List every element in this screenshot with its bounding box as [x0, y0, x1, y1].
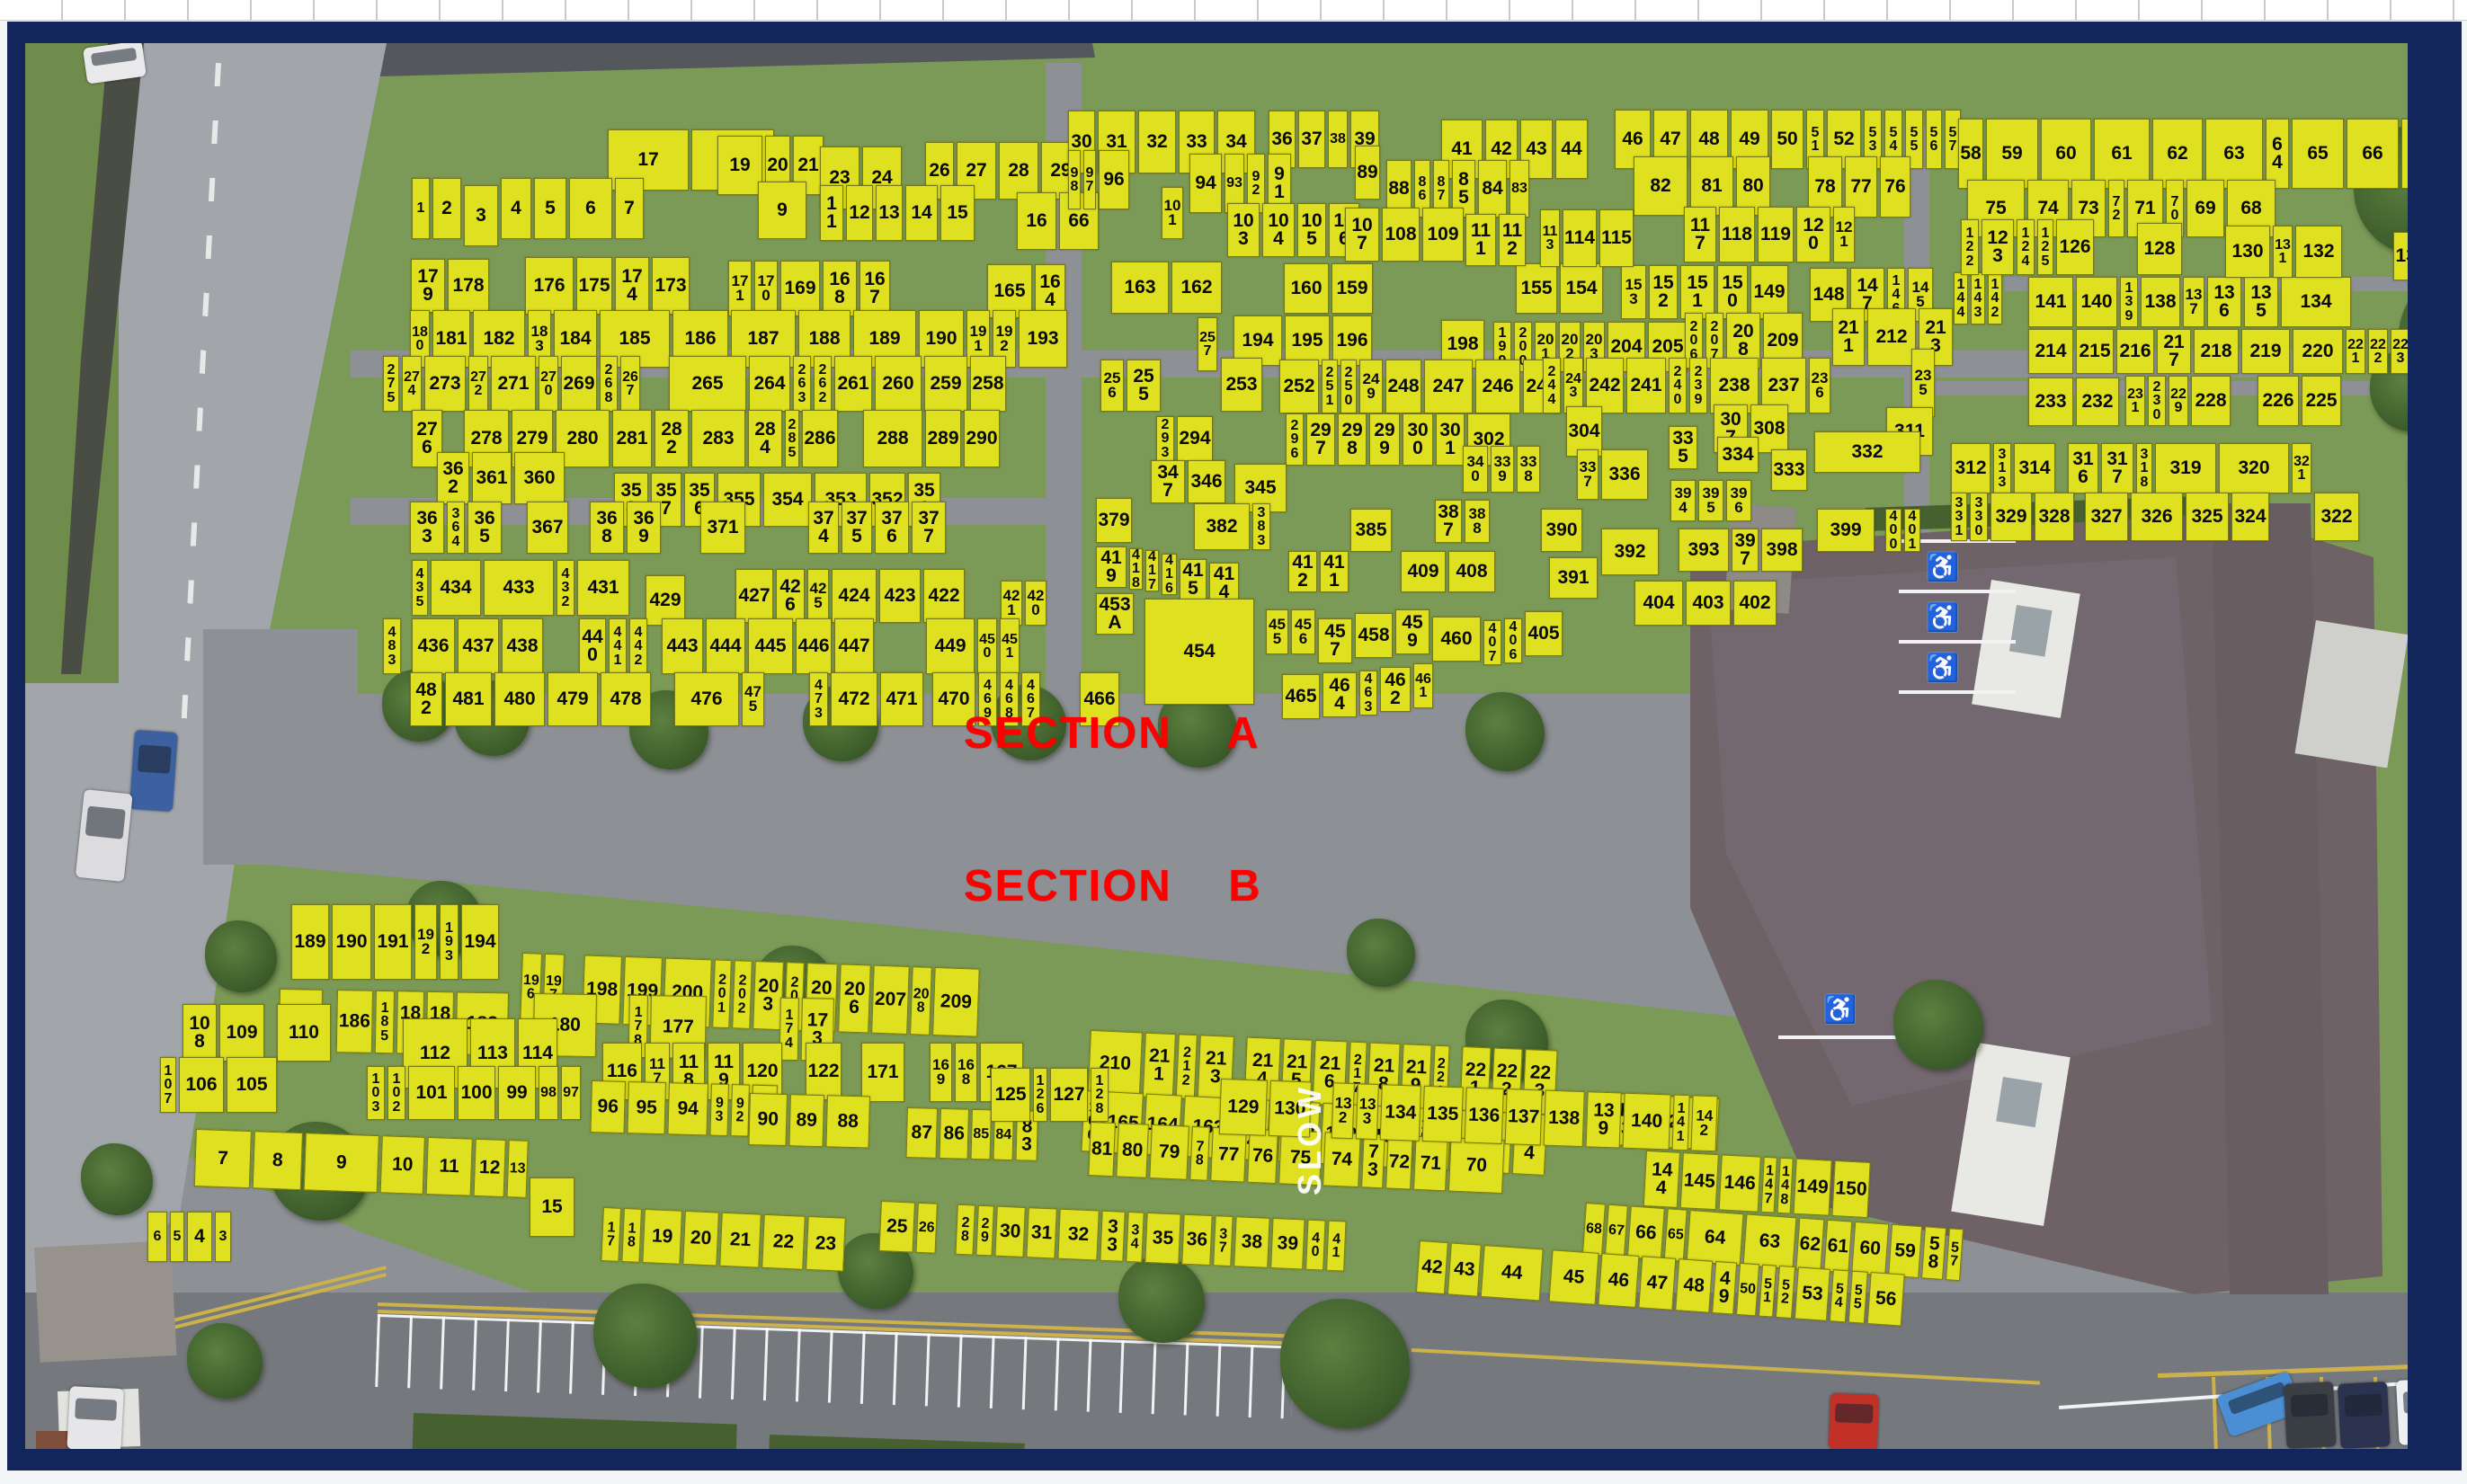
plot-193: 193	[1019, 310, 1067, 368]
plot-178: 178	[448, 259, 489, 313]
plot-247: 247	[1424, 360, 1473, 413]
plot-134: 134	[2281, 277, 2351, 327]
plot-59: 59	[1986, 119, 2038, 189]
plot-row: 125126127128	[991, 1068, 1109, 1122]
plot-99: 99	[498, 1066, 536, 1120]
plot-gap	[445, 410, 461, 411]
plot-226: 226	[2258, 376, 2299, 426]
plot-369: 369	[627, 502, 661, 554]
plot-472: 472	[831, 672, 877, 726]
plot-230: 230	[2148, 376, 2166, 426]
plot-218: 218	[2194, 329, 2239, 374]
plot-297: 297	[1306, 413, 1335, 466]
plot-44: 44	[1555, 120, 1588, 179]
plot-420: 420	[1025, 581, 1046, 626]
plot-259: 259	[924, 356, 967, 412]
plot-327: 327	[2085, 493, 2128, 541]
plot-121: 121	[1833, 207, 1855, 262]
wheelchair-icon: ♿	[1926, 653, 1959, 684]
plot-246: 246	[1475, 360, 1520, 413]
plot-row: 347346	[1151, 460, 1225, 503]
plot-row: 1234567	[412, 178, 644, 246]
plot-28: 28	[955, 1204, 975, 1256]
plot-row: 214215216217218219220221222223224	[2028, 329, 2408, 374]
plot-194: 194	[461, 904, 499, 980]
plot-388: 388	[1465, 500, 1490, 543]
plot-120: 120	[1796, 207, 1830, 262]
plot-47: 47	[1638, 1256, 1676, 1311]
plot-364: 364	[447, 502, 465, 554]
plot-144: 144	[1643, 1151, 1680, 1208]
plot-46: 46	[1598, 1253, 1639, 1308]
plot-row: 404403402	[1634, 581, 1777, 626]
plot-68: 68	[1582, 1203, 1606, 1256]
plot-442: 442	[629, 618, 647, 674]
plot-row: 391	[1549, 557, 1598, 599]
plot-147: 147	[1761, 1157, 1777, 1213]
plot-119: 119	[1758, 207, 1794, 262]
plot-row: 144143142	[1954, 272, 2002, 324]
plot-row: 144145146147148149150	[1643, 1151, 1871, 1218]
plot-row: 171170169168167	[728, 261, 890, 316]
plot-gap	[567, 955, 582, 956]
plot-296: 296	[1286, 413, 1304, 466]
plot-149: 149	[1794, 1159, 1832, 1216]
plot-360: 360	[514, 452, 565, 504]
plot-107: 107	[160, 1057, 176, 1113]
plot-row: 155154	[1516, 263, 1603, 314]
plot-row: 111112	[1465, 214, 1526, 266]
plot-115: 115	[1599, 209, 1634, 267]
ground-patch	[203, 629, 358, 865]
plot-row: 989796	[1068, 150, 1129, 209]
plot-438: 438	[502, 618, 543, 674]
plot-row: 163162	[1111, 262, 1222, 314]
plot-126: 126	[2056, 219, 2094, 275]
plot-216: 216	[2116, 329, 2154, 374]
plot-338: 338	[1517, 446, 1540, 493]
plot-gap	[1237, 1036, 1244, 1037]
plot-191: 191	[374, 904, 412, 980]
plot-63: 63	[1743, 1213, 1797, 1269]
wheelchair-icon: ♿	[1823, 994, 1857, 1026]
plot-12: 12	[474, 1139, 506, 1197]
plot-318: 318	[2136, 443, 2152, 493]
plot-row: 337336	[1577, 449, 1648, 500]
plot-232: 232	[2076, 378, 2119, 426]
plot-185: 185	[375, 991, 395, 1053]
plot-383: 383	[1252, 503, 1270, 550]
plot-64: 64	[2266, 119, 2289, 189]
plot-403: 403	[1686, 581, 1731, 626]
plot-289: 289	[925, 410, 961, 467]
wheelchair-icon: ♿	[1926, 602, 1959, 634]
plot-114: 114	[1563, 209, 1597, 267]
plot-15: 15	[940, 185, 975, 241]
plot-145: 145	[1680, 1152, 1719, 1210]
plot-217: 217	[2157, 329, 2191, 374]
plot-257: 257	[1198, 317, 1217, 371]
plot-row: 465464463462461	[1282, 662, 1433, 719]
plot-56: 56	[1867, 1272, 1905, 1327]
plot-76: 76	[1247, 1129, 1278, 1184]
plot-365: 365	[468, 502, 502, 554]
plot-50: 50	[1771, 110, 1803, 169]
plot-6: 6	[147, 1212, 167, 1262]
plot-160: 160	[1284, 263, 1329, 314]
plot-168: 168	[955, 1043, 977, 1102]
plot-row: 160159	[1284, 263, 1373, 314]
plot-193: 193	[440, 904, 459, 980]
plot-189: 189	[291, 904, 329, 980]
plot-row: 9	[758, 182, 806, 239]
plot-73: 73	[1361, 1133, 1385, 1188]
plot-221: 221	[2346, 329, 2365, 374]
plot-20: 20	[682, 1211, 719, 1266]
plot-37: 37	[1298, 111, 1325, 168]
plot-419: 419	[1096, 547, 1127, 588]
plot-339: 339	[1491, 446, 1514, 493]
plot-31: 31	[1026, 1207, 1056, 1258]
plot-58: 58	[1921, 1226, 1946, 1280]
plot-9: 9	[758, 182, 806, 239]
plot-137: 137	[1505, 1089, 1543, 1145]
plot-row: 108109110	[183, 1004, 331, 1062]
plot-88: 88	[825, 1095, 870, 1148]
plot-61: 61	[1823, 1220, 1852, 1274]
plot-406: 406	[1504, 618, 1522, 663]
plot-390: 390	[1541, 509, 1582, 552]
plot-437: 437	[458, 618, 499, 674]
plot-480: 480	[494, 672, 545, 726]
plot-454: 454	[1144, 599, 1254, 705]
plot-gap	[600, 994, 627, 996]
plot-52: 52	[1776, 1266, 1795, 1319]
plot-44: 44	[1481, 1245, 1544, 1301]
plot-445: 445	[748, 618, 793, 674]
plot-391: 391	[1549, 557, 1598, 599]
plot-87: 87	[906, 1107, 938, 1159]
plot-61: 61	[2094, 119, 2150, 189]
plot-426: 426	[776, 569, 805, 623]
plot-284: 284	[748, 410, 782, 467]
map-frame-left	[7, 22, 25, 1471]
plot-row: 332	[1814, 431, 1920, 473]
plot-298: 298	[1338, 413, 1367, 466]
plot-233: 233	[2028, 378, 2073, 426]
plot-gap	[267, 1004, 274, 1005]
plot-186: 186	[336, 990, 373, 1053]
plot-244: 244	[1543, 358, 1561, 413]
plot-223: 223	[2391, 329, 2408, 374]
plot-379: 379	[1096, 498, 1132, 543]
plot-337: 337	[1577, 449, 1599, 500]
plot-49: 49	[1712, 1261, 1737, 1315]
plot-253: 253	[1221, 358, 1262, 412]
plot-row: 453A	[1096, 593, 1134, 635]
plot-62: 62	[2152, 119, 2203, 189]
plot-32: 32	[1138, 111, 1176, 173]
plot-416: 416	[1162, 554, 1177, 595]
plot-399: 399	[1817, 509, 1875, 552]
plot-138: 138	[2141, 277, 2180, 327]
plot-96: 96	[590, 1080, 626, 1133]
plot-gap	[940, 1204, 955, 1205]
plot-229: 229	[2169, 376, 2188, 426]
plot-104: 104	[1262, 203, 1295, 257]
plot-row: 4834364374384404414424434444454464474494…	[383, 618, 1020, 674]
plot-192: 192	[414, 904, 437, 980]
plot-19: 19	[717, 136, 762, 195]
plot-149: 149	[1750, 265, 1788, 319]
plot-128: 128	[1091, 1068, 1109, 1122]
plot-241: 241	[1626, 358, 1666, 413]
plot-row: 1112131415	[820, 185, 975, 241]
plot-209: 209	[932, 967, 980, 1037]
plot-171: 171	[861, 1043, 904, 1102]
plot-461: 461	[1413, 663, 1433, 708]
plot-row: 78910111213	[194, 1129, 529, 1198]
plot-row: 107106105	[160, 1057, 277, 1113]
parking-line	[1899, 690, 2016, 694]
plot-340: 340	[1463, 446, 1488, 493]
plot-219: 219	[2241, 329, 2290, 374]
plot-39: 39	[1270, 1218, 1305, 1270]
plot-457: 457	[1318, 618, 1352, 663]
plot-row: 189190191192193194	[291, 904, 499, 980]
plot-59: 59	[1888, 1224, 1922, 1278]
plot-441: 441	[609, 618, 627, 674]
plot-152: 152	[1649, 265, 1678, 319]
plot-gap	[1314, 1082, 1331, 1084]
plot-299: 299	[1369, 413, 1400, 466]
plot-23: 23	[806, 1216, 846, 1272]
plot-325: 325	[2186, 493, 2229, 541]
plot-3: 3	[464, 185, 498, 246]
plot-122: 122	[1961, 219, 1979, 275]
plot-gap	[650, 618, 659, 619]
plot-458: 458	[1355, 613, 1393, 658]
plot-139: 139	[1586, 1091, 1622, 1148]
plot-214: 214	[2028, 329, 2073, 374]
plot-row: 113114115	[1540, 209, 1634, 267]
tree-icon	[1347, 919, 1415, 987]
plot-222: 222	[2368, 329, 2388, 374]
plot-433: 433	[484, 560, 554, 616]
plot-gap	[709, 996, 778, 998]
plot-13: 13	[876, 185, 903, 241]
plot-45: 45	[1549, 1249, 1599, 1304]
plot-19: 19	[642, 1209, 682, 1265]
plot-447: 447	[834, 618, 874, 674]
plot-274: 274	[402, 356, 422, 412]
plot-263: 263	[793, 356, 811, 412]
plot-89: 89	[788, 1094, 824, 1147]
plot-387: 387	[1435, 500, 1462, 543]
plot-376: 376	[875, 502, 909, 554]
plot-375: 375	[842, 502, 872, 554]
plot-5: 5	[534, 178, 566, 239]
plot-127: 127	[1050, 1068, 1088, 1122]
plot-34: 34	[1126, 1212, 1144, 1263]
plot-151: 151	[1680, 265, 1714, 319]
plot-273: 273	[424, 356, 466, 412]
plot-301: 301	[1436, 413, 1465, 466]
plot-row: 394395396	[1670, 480, 1751, 521]
plot-row: 385	[1350, 509, 1392, 552]
plot-471: 471	[880, 672, 923, 726]
plot-100: 100	[458, 1066, 495, 1120]
plot-gap	[571, 502, 587, 502]
car	[1829, 1393, 1879, 1449]
plot-392: 392	[1601, 529, 1659, 575]
plot-294: 294	[1177, 416, 1213, 461]
plot-333: 333	[1771, 449, 1807, 491]
plot-167: 167	[859, 261, 890, 316]
plot-174: 174	[615, 257, 649, 315]
plot-270: 270	[539, 356, 558, 412]
plot-26: 26	[916, 1203, 938, 1254]
plot-10: 10	[380, 1135, 425, 1195]
plot-128: 128	[2137, 223, 2182, 275]
plot-102: 102	[387, 1066, 405, 1120]
plot-82: 82	[1634, 156, 1688, 216]
plot-40: 40	[1305, 1220, 1325, 1271]
plot-463: 463	[1359, 671, 1377, 715]
plot-row: 379	[1096, 498, 1132, 543]
plot-465: 465	[1282, 674, 1320, 719]
plot-28: 28	[999, 142, 1038, 200]
plot-407: 407	[1483, 620, 1501, 665]
tree-icon	[205, 920, 277, 992]
plot-331: 331	[1951, 493, 1967, 541]
plot-267: 267	[620, 356, 640, 412]
plot-row: 231230229228226225	[2125, 376, 2341, 426]
plot-60: 60	[1851, 1222, 1889, 1276]
plot-415: 415	[1180, 559, 1207, 600]
plot-65: 65	[2292, 119, 2344, 189]
plot-125: 125	[2037, 219, 2053, 275]
parking-line	[1899, 640, 2016, 644]
plot-367: 367	[527, 502, 568, 554]
plot-gap	[512, 993, 531, 994]
plot-312: 312	[1951, 443, 1991, 493]
plot-368: 368	[590, 502, 624, 554]
plot-329: 329	[1991, 493, 2032, 541]
plot-481: 481	[445, 672, 492, 726]
plot-110: 110	[277, 1004, 331, 1062]
plot-gap	[1043, 672, 1077, 673]
plot-397: 397	[1732, 529, 1759, 572]
plot-169: 169	[780, 261, 820, 316]
plot-65: 65	[1664, 1208, 1688, 1261]
plot-408: 408	[1448, 551, 1495, 592]
plot-317: 317	[2101, 443, 2133, 493]
plot-66: 66	[2347, 119, 2399, 189]
plot-140: 140	[1623, 1093, 1671, 1151]
plot-436: 436	[412, 618, 455, 674]
plot-row: 293294	[1156, 416, 1213, 461]
plot-141: 141	[2028, 277, 2073, 327]
plot-76: 76	[1880, 156, 1910, 218]
plot-446: 446	[796, 618, 832, 674]
plot-425: 425	[807, 569, 829, 623]
plot-32: 32	[1057, 1209, 1099, 1261]
plot-288: 288	[863, 410, 922, 467]
plot-455: 455	[1266, 609, 1288, 654]
plot-268: 268	[600, 356, 618, 412]
plot-row: 393397398	[1679, 529, 1803, 572]
plot-402: 402	[1733, 581, 1777, 626]
map-frame-right	[2408, 22, 2462, 1471]
plot-313: 313	[1993, 443, 2011, 493]
plot-36: 36	[1181, 1214, 1212, 1266]
plot-33: 33	[1100, 1211, 1125, 1262]
plot-80: 80	[1116, 1123, 1149, 1177]
plot-106: 106	[179, 1057, 224, 1113]
plot-251: 251	[1322, 360, 1338, 413]
plot-405: 405	[1525, 611, 1563, 656]
plot-60: 60	[2041, 119, 2091, 189]
aerial-photo: ♿♿♿♿ 17181920212324262728293031323334363…	[25, 43, 2408, 1449]
plot-gap	[2272, 493, 2311, 493]
plot-row: 122123124125126	[1961, 219, 2094, 275]
plot-159: 159	[1331, 263, 1373, 314]
plot-139: 139	[2120, 277, 2138, 327]
section-b-label: SECTION B	[964, 861, 1262, 911]
plot-154: 154	[1560, 263, 1603, 314]
tree-icon	[81, 1143, 153, 1215]
plot-173: 173	[652, 257, 690, 315]
plot-row: 252251250249248247246245	[1279, 360, 1561, 413]
section-a-label: SECTION A	[964, 708, 1260, 759]
plot-101: 101	[1162, 187, 1183, 239]
plot-22: 22	[761, 1214, 806, 1270]
plot-row: 133	[2393, 232, 2408, 280]
plot-319: 319	[2155, 443, 2216, 493]
plot-211: 211	[1832, 308, 1865, 366]
plot-449: 449	[926, 618, 975, 674]
plot-18: 18	[621, 1208, 642, 1263]
plot-row: 334	[1717, 437, 1759, 473]
plot-5: 5	[170, 1212, 184, 1262]
plot-260: 260	[875, 356, 922, 412]
plot-269: 269	[561, 356, 597, 412]
plot-122: 122	[806, 1043, 842, 1100]
plot-85: 85	[971, 1109, 992, 1160]
plot-336: 336	[1601, 449, 1648, 500]
plot-385: 385	[1350, 509, 1392, 552]
plot-row: 17181920212223	[601, 1207, 845, 1272]
plot-72: 72	[1385, 1134, 1413, 1189]
plot-451: 451	[1000, 618, 1020, 674]
plot-67: 67	[1605, 1204, 1628, 1257]
plot-gap	[748, 502, 806, 502]
plot-320: 320	[2219, 443, 2289, 493]
plot-440: 440	[579, 618, 606, 674]
plot-7: 7	[194, 1129, 252, 1188]
plot-gap	[654, 672, 672, 673]
plot-30: 30	[994, 1206, 1025, 1257]
plot-272: 272	[468, 356, 488, 412]
plot-89: 89	[1355, 146, 1380, 200]
plot-38: 38	[1328, 111, 1348, 168]
car	[67, 1386, 124, 1449]
plot-21: 21	[719, 1213, 761, 1268]
plot-4: 4	[187, 1212, 212, 1262]
plot-393: 393	[1679, 529, 1729, 572]
plot-242: 242	[1586, 358, 1624, 413]
